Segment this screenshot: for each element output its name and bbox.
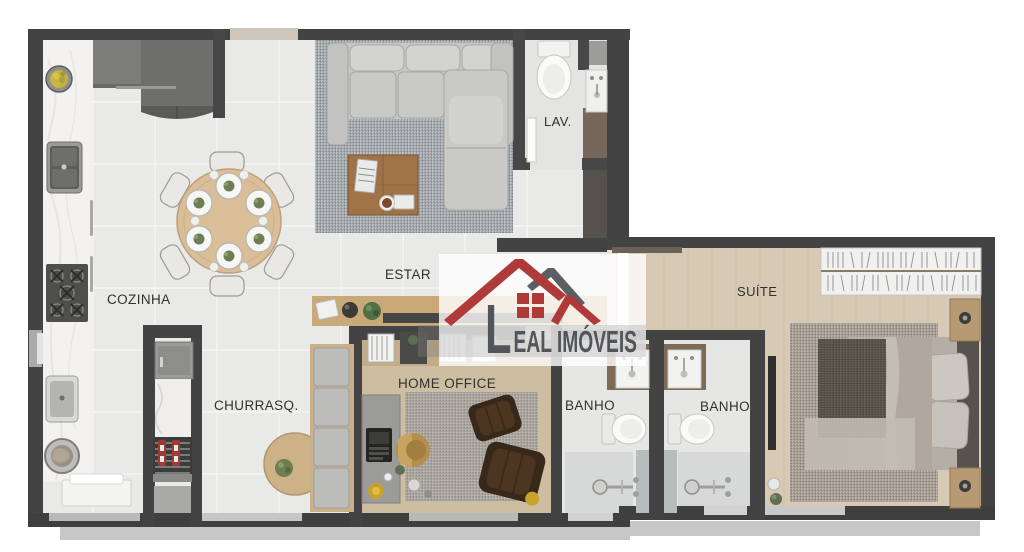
svg-text:CHURRASQ.: CHURRASQ. [214, 398, 299, 413]
svg-text:L: L [485, 290, 512, 368]
svg-text:SUÍTE: SUÍTE [737, 284, 777, 299]
svg-text:BANHO: BANHO [700, 399, 750, 414]
svg-text:BANHO: BANHO [565, 398, 615, 413]
svg-text:COZINHA: COZINHA [107, 292, 171, 307]
svg-text:LAV.: LAV. [544, 114, 572, 129]
svg-text:HOME OFFICE: HOME OFFICE [398, 376, 496, 391]
svg-text:ESTAR: ESTAR [385, 267, 431, 282]
svg-text:EAL IMÓVEIS: EAL IMÓVEIS [514, 323, 637, 359]
